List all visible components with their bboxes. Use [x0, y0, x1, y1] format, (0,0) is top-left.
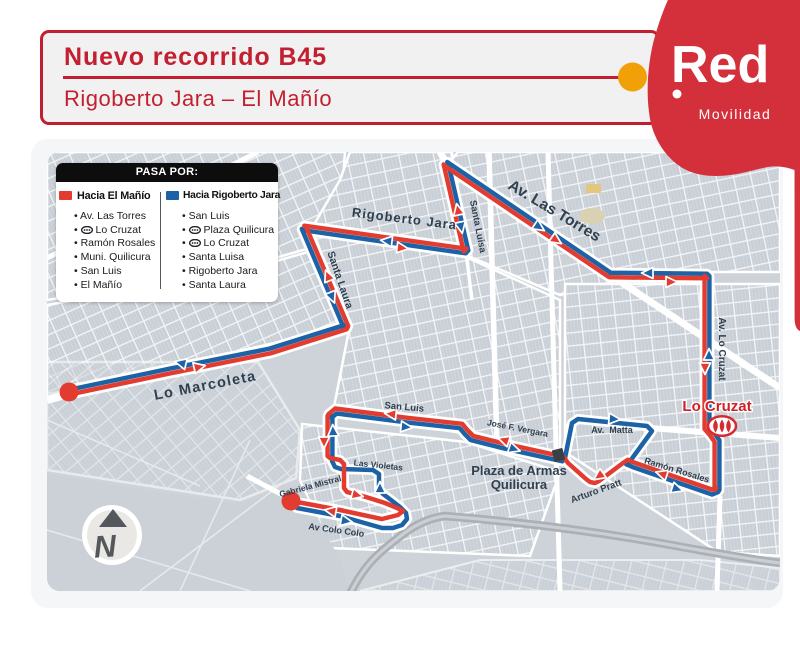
- svg-text:Red: Red: [671, 36, 769, 94]
- svg-text:Plaza de Armas: Plaza de Armas: [471, 463, 567, 478]
- svg-text:N: N: [93, 528, 118, 565]
- svg-text:Movilidad: Movilidad: [699, 106, 772, 122]
- svg-text:Quilicura: Quilicura: [491, 477, 548, 492]
- svg-text:Av. Matta: Av. Matta: [591, 425, 634, 435]
- svg-text:Av. Lo Cruzat: Av. Lo Cruzat: [716, 317, 727, 381]
- svg-text:Lo Cruzat: Lo Cruzat: [682, 398, 751, 415]
